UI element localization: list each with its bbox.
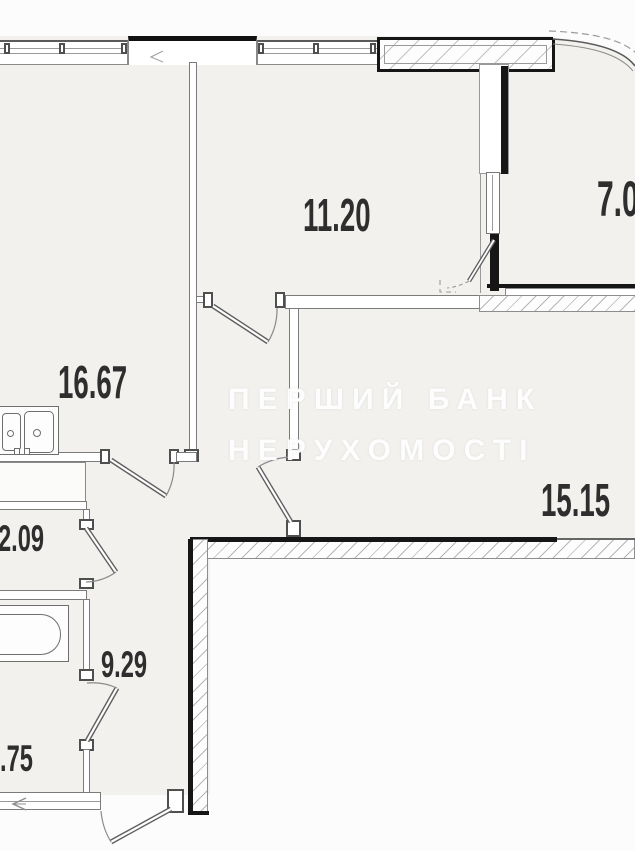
room-label-kitchen: 16.67 <box>58 355 127 409</box>
sink-drain <box>7 430 14 437</box>
wall-loggia-partition-black <box>501 66 508 174</box>
door-jamb <box>203 292 213 308</box>
window-mullion <box>4 43 10 54</box>
room-label-bathroom: .75 <box>0 738 33 780</box>
wall-bedroom-bottom <box>285 295 481 309</box>
wall-living-left <box>289 308 299 451</box>
wall-loggia-partition-face <box>480 174 481 293</box>
wall-closet-top <box>0 501 87 510</box>
loggia-window-unit <box>486 172 500 234</box>
vent-shaft-wall <box>377 37 555 72</box>
boundary-wall-horizontal <box>190 539 635 559</box>
window-mullion <box>370 43 376 54</box>
window-mullion <box>258 43 264 54</box>
sink-faucet <box>14 448 20 455</box>
loggia-door-frame <box>490 234 499 291</box>
door-entry <box>101 809 171 842</box>
wall-bottom-exterior <box>0 792 101 810</box>
window-glass-line <box>492 175 493 231</box>
room-label-hall: 9.29 <box>101 644 147 686</box>
sink-faucet <box>24 448 30 455</box>
bathtub-inner <box>0 614 61 655</box>
wall-bath-right-lower <box>83 749 90 795</box>
room-label-bedroom: 11.20 <box>303 188 371 242</box>
window-mullion <box>59 43 65 54</box>
door-jamb <box>79 578 94 589</box>
vent-shaft-inner-line <box>384 45 547 64</box>
wall-face-line <box>0 801 100 802</box>
wall-kitchen-bottom-right <box>176 452 197 462</box>
loggia-parapet-wall <box>479 295 635 312</box>
sink-drain <box>33 429 41 437</box>
door-jamb <box>100 449 110 464</box>
boundary-wall-left-edge <box>188 539 193 814</box>
wall-bath-right-upper <box>83 599 90 675</box>
bathtub <box>0 605 69 662</box>
built-in-cabinet <box>0 462 86 502</box>
wall-pier <box>128 36 257 65</box>
floor-plan: 11.20 7.0 16.67 15.15 2.09 9.29 .75 ПЕРШ… <box>0 0 635 850</box>
window-mullion <box>121 43 127 54</box>
kitchen-sink <box>0 406 59 455</box>
room-label-closet: 2.09 <box>0 518 44 560</box>
door-jamb <box>167 789 184 813</box>
door-jamb <box>79 519 94 530</box>
door-jamb <box>79 669 94 681</box>
wall-closet-bottom <box>0 590 87 600</box>
room-label-living: 15.15 <box>541 473 610 527</box>
window-mullion <box>313 43 319 54</box>
boundary-wall-bottom-cap <box>188 811 209 815</box>
wall-kitchen-right <box>189 62 197 457</box>
boundary-wall-top-edge <box>190 537 557 542</box>
watermark-line1: ПЕРШИЙ БАНК <box>228 383 542 417</box>
door-jamb <box>286 520 301 537</box>
door-jamb <box>275 292 285 308</box>
room-label-loggia: 7.0 <box>597 170 635 228</box>
boundary-wall-top-edge-thin <box>557 538 635 540</box>
watermark-line2: НЕРУХОМОСТІ <box>228 434 536 468</box>
